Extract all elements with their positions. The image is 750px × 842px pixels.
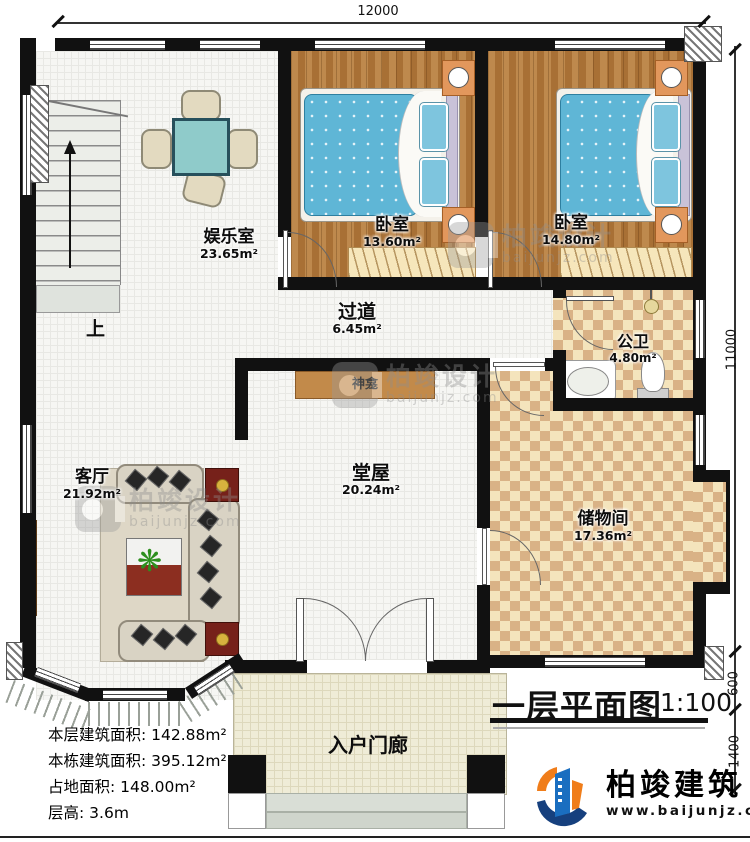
- nightstand-lamp: [442, 60, 475, 96]
- room-label-bathroom: 公卫 4.80m²: [573, 332, 693, 365]
- watermark-logo-icon: [332, 362, 378, 408]
- dining-chair: [141, 129, 172, 169]
- dining-chair: [227, 129, 258, 169]
- floor-storage-bay: [693, 482, 727, 583]
- nightstand-lamp: [655, 207, 688, 243]
- room-area: 23.65m²: [169, 247, 289, 261]
- title-underline: [490, 718, 708, 723]
- room-area: 4.80m²: [573, 351, 693, 365]
- room-label-entertainment: 娱乐室 23.65m²: [169, 228, 289, 261]
- watermark: 柏竣设计 baijunjz.com: [332, 362, 499, 408]
- wall-bay-stub-top: [693, 470, 730, 482]
- dining-table: [172, 118, 230, 176]
- room-label-corridor: 过道 6.45m²: [297, 303, 417, 336]
- stat-row: 本层建筑面积: 142.88m²: [48, 722, 227, 748]
- wall-hall-storage-lower: [477, 585, 490, 660]
- pendant-light-icon: [644, 299, 659, 314]
- stats-block: 本层建筑面积: 142.88m² 本栋建筑面积: 395.12m² 占地面积: …: [48, 722, 227, 826]
- title-underline-thin: [493, 727, 705, 729]
- sink: [567, 367, 609, 396]
- room-name: 公卫: [573, 332, 693, 351]
- room-name: 客厅: [32, 468, 152, 487]
- room-label-storage: 储物间 17.36m²: [543, 510, 663, 543]
- axis-hatch-mark: [6, 642, 23, 680]
- stat-row: 本栋建筑面积: 395.12m²: [48, 748, 227, 774]
- bed-pillow: [420, 158, 448, 206]
- door-leaf: [482, 528, 487, 585]
- room-label-hall: 堂屋 20.24m²: [311, 464, 431, 497]
- baijun-logo-icon: [526, 758, 598, 830]
- wall-hall-bottom-left: [225, 660, 307, 673]
- room-name: 娱乐室: [169, 228, 289, 247]
- wall-bedroom1-left: [278, 38, 291, 237]
- dining-chair: [181, 90, 221, 121]
- drawing-scale: 1:100: [660, 688, 732, 717]
- dimension-right-main: 11000: [725, 320, 740, 380]
- wall-bay-right-edge: [726, 470, 730, 594]
- wall-bedroom-party: [475, 38, 488, 237]
- plant-icon: ❋: [137, 544, 162, 579]
- room-area: 20.24m²: [311, 483, 431, 497]
- room-name: 卧室: [332, 216, 452, 235]
- stair-landing: [36, 285, 120, 313]
- window: [103, 690, 167, 700]
- stairs-direction-line: [69, 152, 71, 268]
- axis-hatch-mark: [704, 646, 724, 680]
- stairs-up-arrow-icon: [64, 140, 76, 154]
- room-label-porch: 入户门廊: [293, 729, 443, 758]
- bottom-border-line: [0, 836, 750, 838]
- bed-pillow: [652, 158, 680, 206]
- room-label-living: 客厅 21.92m²: [32, 468, 152, 501]
- window: [315, 40, 425, 50]
- entry-step: [266, 793, 467, 812]
- porch-column-base: [467, 793, 505, 829]
- wall-bathroom-bottom: [553, 398, 706, 411]
- wall-bathroom-left-stub: [553, 290, 566, 298]
- dimension-top-value: 12000: [348, 4, 408, 19]
- stat-row: 层高: 3.6m: [48, 800, 227, 826]
- window: [545, 657, 645, 667]
- stat-row: 占地面积: 148.00m²: [48, 774, 227, 800]
- room-area: 21.92m²: [32, 487, 152, 501]
- entry-door-leaf: [426, 598, 434, 662]
- window: [22, 425, 32, 513]
- window: [90, 40, 165, 50]
- stairs-up-label: 上: [86, 314, 105, 341]
- entry-door-leaf: [296, 598, 304, 662]
- brand-name: 柏竣建筑: [606, 769, 750, 803]
- watermark-text: 柏竣设计 baijunjz.com: [386, 364, 499, 406]
- room-area: 13.60m²: [332, 235, 452, 249]
- room-area: 14.80m²: [511, 233, 631, 247]
- axis-hatch-mark: [684, 26, 722, 62]
- bed-pillow: [652, 103, 680, 151]
- room-name: 储物间: [543, 510, 663, 529]
- porch-column: [228, 755, 266, 793]
- nightstand-lamp: [655, 60, 688, 96]
- brand-text: 柏竣建筑 www.baijunjz.com: [606, 769, 750, 819]
- floor-plan: ❋ 神龛: [0, 0, 750, 842]
- side-table: [205, 622, 239, 656]
- porch-column-base: [228, 793, 266, 829]
- porch-column: [467, 755, 505, 793]
- bed-pillow: [420, 103, 448, 151]
- room-label-bedroom2: 卧室 14.80m²: [511, 214, 631, 247]
- window: [200, 40, 260, 50]
- room-area: 6.45m²: [297, 322, 417, 336]
- wall-living-hall-stub: [235, 358, 248, 440]
- room-name: 过道: [297, 303, 417, 322]
- watermark-logo-icon: [448, 222, 494, 268]
- window: [695, 415, 705, 465]
- entry-step: [266, 812, 467, 829]
- wall-bay-stub-bottom: [693, 582, 730, 594]
- window: [695, 300, 705, 358]
- window: [555, 40, 665, 50]
- brand-block: 柏竣建筑 www.baijunjz.com: [526, 758, 750, 830]
- dimension-line-top: [58, 22, 706, 24]
- room-label-bedroom1: 卧室 13.60m²: [332, 216, 452, 249]
- room-name: 卧室: [511, 214, 631, 233]
- brand-url: www.baijunjz.com: [606, 803, 750, 819]
- axis-hatch-mark: [30, 85, 49, 183]
- room-name: 堂屋: [311, 464, 431, 483]
- room-area: 17.36m²: [543, 529, 663, 543]
